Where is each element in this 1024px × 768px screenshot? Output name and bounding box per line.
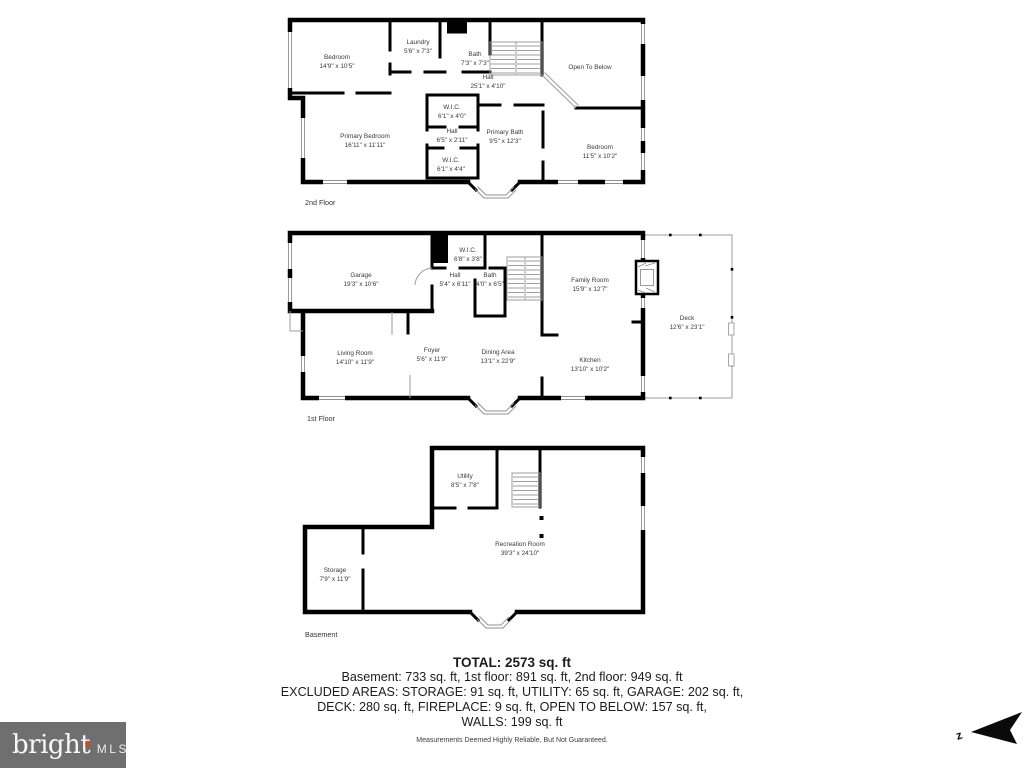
room-name: Hall	[482, 74, 493, 81]
room-label-kitchen: Kitchen 13'10" x 10'2"	[571, 357, 610, 373]
room-dims: 19'3" x 10'6"	[343, 281, 378, 288]
room-label-bedroom-right: Bedroom 11'5" x 10'2"	[583, 144, 618, 160]
room-dims: 13'1" x 22'9"	[480, 358, 515, 365]
chimney	[447, 21, 467, 34]
total-area: TOTAL: 2573 sq. ft	[0, 655, 1024, 670]
room-name: W.I.C.	[442, 157, 460, 164]
room-dims: 5'6" x 7'3"	[404, 48, 432, 55]
basement-walls	[305, 448, 643, 612]
room-label-foyer: Foyer 5'6" x 11'9"	[416, 347, 447, 363]
logo-star-icon: ✱	[84, 740, 92, 751]
room-name: Utility	[457, 473, 473, 480]
area-summary: TOTAL: 2573 sq. ft Basement: 733 sq. ft,…	[0, 655, 1024, 744]
floor-label-2nd: 2nd Floor	[305, 198, 336, 207]
excluded-areas-3: WALLS: 199 sq. ft	[0, 715, 1024, 730]
disclaimer: Measurements Deemed Highly Reliable, But…	[0, 737, 1024, 744]
room-label-wic1: W.I.C. 6'8" x 3'8"	[454, 247, 482, 263]
room-label-hall1: Hall 5'4" x 6'11"	[439, 272, 470, 288]
room-dims: 13'10" x 10'2"	[571, 366, 610, 373]
room-dims: 14'10" x 11'9"	[336, 359, 374, 366]
room-dims: 25'1" x 4'10"	[470, 83, 505, 90]
room-name: Bath	[468, 51, 482, 58]
floorplan-page: Bedroom 14'9" x 10'5" Laundry 5'6" x 7'3…	[0, 0, 1024, 768]
room-name: Bedroom	[324, 54, 350, 61]
room-dims: 5'4" x 6'11"	[439, 281, 470, 288]
first-floor-plan: Garage 19'3" x 10'6" W.I.C. 6'8" x 3'8" …	[285, 228, 745, 428]
room-name: Hall	[446, 128, 457, 135]
room-label-dining-area: Dining Area 13'1" x 22'9"	[480, 349, 515, 365]
room-dims: 7'9" x 11'9"	[319, 576, 350, 583]
logo-suffix: MLS	[97, 742, 129, 756]
room-dims: 39'3" x 24'10"	[501, 550, 540, 557]
first-floor-stairs	[507, 257, 542, 300]
room-name: Living Room	[337, 350, 373, 357]
first-floor-windows	[287, 240, 646, 401]
second-floor-plan: Bedroom 14'9" x 10'5" Laundry 5'6" x 7'3…	[285, 12, 650, 212]
room-label-hall-long: Hall 25'1" x 4'10"	[470, 74, 505, 90]
room-label-recreation-room: Recreation Room 39'3" x 24'10"	[495, 541, 545, 557]
room-name: Hall	[449, 272, 460, 279]
room-label-storage: Storage 7'9" x 11'9"	[319, 567, 350, 583]
garage-door-swing	[415, 268, 432, 285]
room-dims: 12'6" x 23'1"	[669, 324, 704, 331]
support-post	[540, 534, 544, 538]
room-dims: 6'1" x 4'0"	[438, 113, 466, 120]
room-name: Bath	[483, 272, 497, 279]
second-floor-windows	[287, 24, 646, 185]
second-floor-bay-window	[468, 182, 520, 198]
basement-plan: Utility 8'5" x 7'8" Recreation Room 39'3…	[297, 444, 647, 642]
compass-north-arrow: z	[948, 704, 1024, 760]
floor-areas: Basement: 733 sq. ft, 1st floor: 891 sq.…	[0, 670, 1024, 685]
room-name: Bedroom	[587, 144, 613, 151]
room-dims: 14'9" x 10'5"	[319, 63, 354, 70]
room-name: Open To Below	[568, 64, 612, 71]
north-arrow-icon	[971, 712, 1022, 744]
room-name: Kitchen	[579, 357, 601, 364]
room-dims: 8'5" x 7'8"	[451, 482, 479, 489]
room-label-hall-small: Hall 6'5" x 2'11"	[436, 128, 467, 144]
room-label-open-to-below: Open To Below	[568, 64, 612, 71]
room-name: Storage	[324, 567, 347, 574]
logo-wordmark: bright	[12, 730, 90, 760]
room-label-bedroom-tl: Bedroom 14'9" x 10'5"	[319, 54, 354, 70]
room-name: Primary Bath	[487, 129, 524, 136]
excluded-areas-1: EXCLUDED AREAS: STORAGE: 91 sq. ft, UTIL…	[0, 685, 1024, 700]
room-label-bath1: Bath 4'0" x 6'5"	[476, 272, 504, 288]
room-name: Deck	[680, 315, 695, 322]
fireplace	[636, 261, 658, 294]
room-dims: 4'0" x 6'5"	[476, 281, 504, 288]
room-label-wic-top: W.I.C. 6'1" x 4'0"	[438, 104, 466, 120]
stair-railing	[542, 73, 579, 109]
room-label-wic-bottom: W.I.C. 6'1" x 4'4"	[437, 157, 465, 173]
room-label-primary-bath: Primary Bath 9'5" x 12'3"	[487, 129, 524, 145]
room-name: Foyer	[424, 347, 441, 354]
wic-solid-wall	[432, 233, 448, 263]
room-label-laundry: Laundry 5'6" x 7'3"	[404, 39, 432, 55]
room-name: Laundry	[406, 39, 430, 46]
bright-mls-logo: bright✱MLS	[0, 722, 126, 768]
room-label-living-room: Living Room 14'10" x 11'9"	[336, 350, 374, 366]
room-name: Family Room	[571, 277, 609, 284]
room-dims: 5'6" x 11'9"	[416, 356, 447, 363]
room-dims: 6'5" x 2'11"	[436, 137, 467, 144]
room-label-family-room: Family Room 15'9" x 12'7"	[571, 277, 609, 293]
room-name: Dining Area	[481, 349, 514, 356]
compass-label: z	[954, 728, 964, 743]
second-floor-stairs	[490, 42, 579, 108]
room-label-primary-bedroom: Primary Bedroom 16'11" x 11'11"	[340, 133, 390, 149]
room-label-utility: Utility 8'5" x 7'8"	[451, 473, 479, 489]
room-name: Garage	[350, 272, 372, 279]
floor-label-basement: Basement	[305, 630, 337, 639]
room-name: Recreation Room	[495, 541, 545, 548]
room-dims: 11'5" x 10'2"	[583, 153, 618, 160]
room-dims: 9'5" x 12'3"	[489, 138, 521, 145]
room-dims: 6'1" x 4'4"	[437, 166, 465, 173]
room-name: W.I.C.	[459, 247, 477, 254]
excluded-areas-2: DECK: 280 sq. ft, FIREPLACE: 9 sq. ft, O…	[0, 700, 1024, 715]
floor-label-1st: 1st Floor	[307, 414, 336, 423]
room-name: W.I.C.	[443, 104, 461, 111]
basement-bay-window	[470, 612, 517, 628]
room-dims: 15'9" x 12'7"	[572, 286, 607, 293]
room-dims: 6'8" x 3'8"	[454, 256, 482, 263]
room-name: Primary Bedroom	[340, 133, 390, 140]
support-post	[540, 516, 544, 520]
room-label-garage: Garage 19'3" x 10'6"	[343, 272, 378, 288]
first-floor-bay-window	[468, 398, 520, 414]
room-label-deck: Deck 12'6" x 23'1"	[669, 315, 704, 331]
room-dims: 7'3" x 7'3"	[461, 60, 489, 67]
room-dims: 16'11" x 11'11"	[345, 142, 386, 149]
room-label-bath2: Bath 7'3" x 7'3"	[461, 51, 489, 67]
